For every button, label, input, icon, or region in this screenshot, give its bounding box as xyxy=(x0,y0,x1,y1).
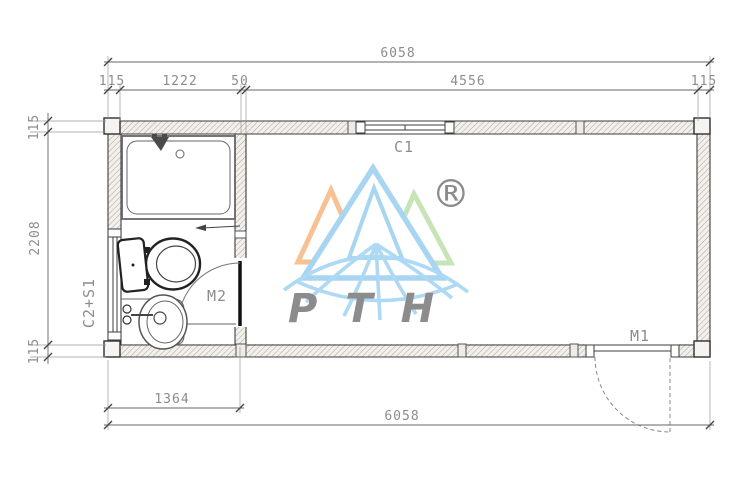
dim-top-seg-115r: 115 xyxy=(691,74,717,89)
dim-top-seg-50: 50 xyxy=(231,74,249,89)
sink-drain xyxy=(154,312,166,324)
faucet-handle xyxy=(123,305,131,313)
logo-brand-text: PTH xyxy=(288,286,462,332)
dim-top-seg-115: 115 xyxy=(99,74,125,89)
label-door-m2: M2 xyxy=(207,287,227,305)
floor-plan-svg: PTH ® xyxy=(0,0,750,485)
label-window-c2s1: C2+S1 xyxy=(80,278,98,328)
toilet xyxy=(117,238,200,292)
interior-partition-wall xyxy=(235,134,246,258)
dim-top-seg-4556: 4556 xyxy=(450,74,485,89)
floor-plan-canvas: PTH ® xyxy=(0,0,750,485)
dim-left-seg-115t: 115 xyxy=(27,114,42,140)
dim-bottom-partition: 1364 xyxy=(154,392,189,407)
shower-drain xyxy=(176,150,184,158)
direction-arrow xyxy=(195,225,240,232)
faucet-handle xyxy=(123,316,131,324)
shower-enclosure xyxy=(122,134,235,219)
pth-logo-watermark: PTH ® xyxy=(284,167,468,332)
dim-top-total: 6058 xyxy=(380,46,415,61)
door-m1-swing-arc xyxy=(595,357,670,432)
label-window-c1: C1 xyxy=(394,138,414,156)
dimension-bottom: 1364 6058 xyxy=(104,347,714,430)
dim-top-seg-1222: 1222 xyxy=(162,74,197,89)
dim-left-seg-115b: 115 xyxy=(27,338,42,364)
registered-trademark-icon: ® xyxy=(437,167,465,221)
sink xyxy=(121,295,187,349)
label-door-m1: M1 xyxy=(630,327,650,345)
shower-head-icon xyxy=(151,137,169,151)
dim-bottom-total: 6058 xyxy=(384,409,419,424)
door-m1 xyxy=(586,345,679,432)
dim-left-seg-2208: 2208 xyxy=(28,220,43,255)
